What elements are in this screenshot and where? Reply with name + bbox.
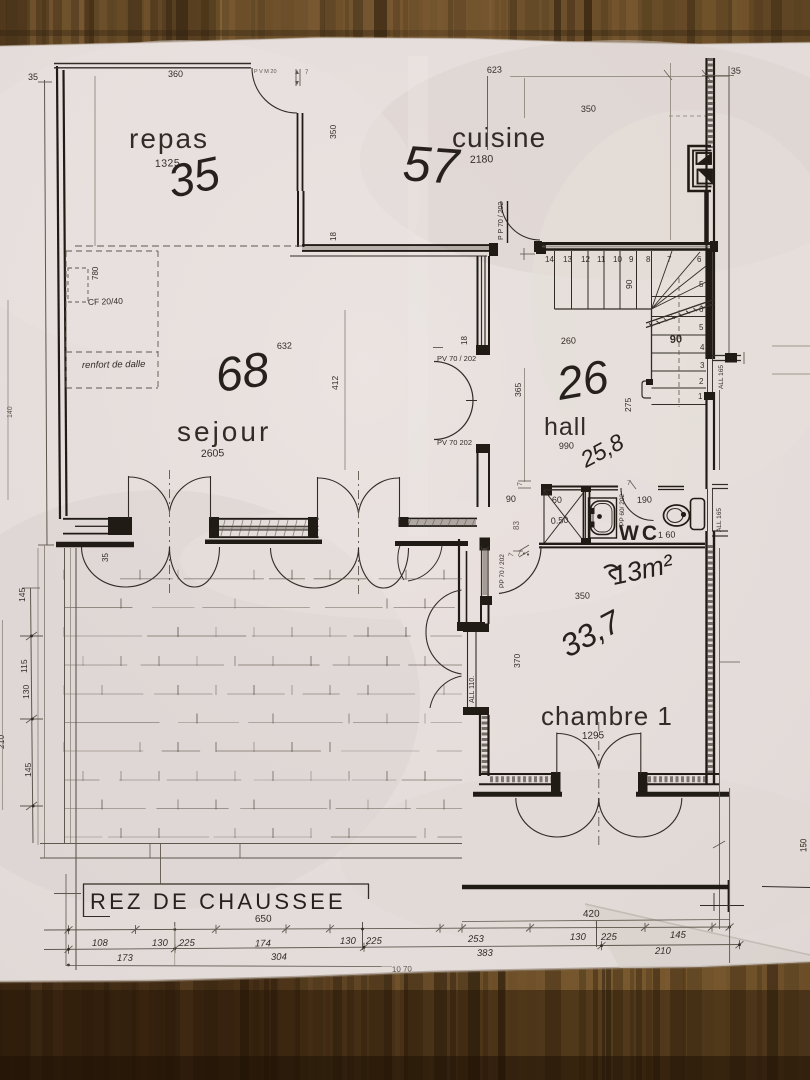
- svg-text:90: 90: [624, 279, 634, 289]
- svg-text:990: 990: [559, 440, 574, 451]
- svg-text:130: 130: [152, 938, 169, 949]
- svg-text:6: 6: [699, 305, 704, 314]
- svg-text:304: 304: [271, 952, 287, 963]
- svg-text:260: 260: [561, 335, 576, 346]
- svg-text:350: 350: [581, 103, 596, 114]
- svg-text:190: 190: [637, 494, 652, 505]
- svg-text:57: 57: [401, 135, 463, 195]
- svg-text:18: 18: [460, 336, 469, 345]
- svg-text:420: 420: [583, 909, 600, 920]
- svg-text:1295: 1295: [582, 730, 605, 742]
- svg-text:26: 26: [552, 350, 613, 410]
- svg-text:115: 115: [19, 659, 29, 673]
- svg-text:145: 145: [23, 763, 33, 777]
- svg-text:5: 5: [699, 323, 704, 332]
- svg-text:4: 4: [700, 343, 705, 352]
- svg-text:renfort de dalle: renfort de dalle: [82, 359, 146, 371]
- svg-text:360: 360: [168, 69, 183, 79]
- svg-text:130: 130: [340, 936, 357, 947]
- svg-text:ALL 110.: ALL 110.: [469, 676, 476, 703]
- svg-text:P V M 20: P V M 20: [254, 69, 277, 75]
- svg-text:2605: 2605: [201, 447, 225, 460]
- svg-text:PV 70 202: PV 70 202: [437, 438, 472, 447]
- svg-text:5: 5: [699, 280, 704, 289]
- svg-text:2180: 2180: [470, 153, 494, 166]
- svg-text:365: 365: [513, 383, 523, 397]
- svg-text:3: 3: [700, 361, 705, 370]
- svg-text:ALL 165: ALL 165: [716, 508, 723, 532]
- svg-text:cuisine: cuisine: [452, 122, 546, 153]
- svg-text:275: 275: [623, 398, 633, 412]
- svg-text:REZ DE CHAUSSEE: REZ DE CHAUSSEE: [90, 889, 346, 914]
- svg-text:68: 68: [212, 343, 273, 403]
- svg-text:12: 12: [581, 255, 590, 264]
- svg-text:145: 145: [17, 588, 27, 602]
- svg-text:PP 70 / 202: PP 70 / 202: [499, 554, 506, 588]
- svg-text:8: 8: [646, 255, 651, 264]
- svg-text:210: 210: [0, 735, 6, 749]
- svg-text:90: 90: [670, 333, 683, 346]
- svg-text:35: 35: [101, 553, 110, 562]
- svg-text:7: 7: [517, 482, 524, 486]
- svg-text:225: 225: [365, 936, 383, 947]
- svg-text:13: 13: [563, 255, 572, 264]
- svg-text:108: 108: [92, 938, 109, 949]
- svg-text:412: 412: [330, 376, 340, 390]
- svg-text:7: 7: [627, 480, 631, 487]
- svg-text:650: 650: [255, 914, 272, 925]
- svg-text:14: 14: [545, 255, 554, 264]
- svg-text:hall: hall: [544, 413, 587, 441]
- svg-text:383: 383: [477, 948, 494, 959]
- svg-text:35: 35: [28, 72, 38, 82]
- svg-text:35: 35: [731, 65, 742, 76]
- svg-text:210: 210: [654, 946, 672, 957]
- svg-text:ALL 165: ALL 165: [718, 365, 725, 389]
- svg-text:PV 70 / 202: PV 70 / 202: [437, 354, 476, 363]
- svg-text:18: 18: [329, 232, 338, 241]
- svg-text:11: 11: [597, 255, 606, 264]
- svg-text:60: 60: [552, 495, 562, 505]
- svg-text:10 70: 10 70: [392, 964, 413, 974]
- svg-text:632: 632: [277, 340, 292, 351]
- svg-text:623: 623: [487, 64, 502, 75]
- svg-text:253: 253: [467, 934, 485, 945]
- svg-text:WC: WC: [619, 522, 660, 545]
- svg-text:145: 145: [670, 930, 687, 941]
- svg-text:173: 173: [117, 953, 134, 964]
- svg-text:350: 350: [575, 590, 590, 601]
- svg-text:225: 225: [178, 938, 196, 949]
- svg-text:225: 225: [600, 932, 618, 943]
- svg-text:7: 7: [517, 551, 521, 558]
- svg-text:CF 20/40: CF 20/40: [88, 296, 124, 307]
- svg-text:150: 150: [800, 838, 809, 852]
- svg-text:780: 780: [91, 266, 100, 280]
- svg-text:1: 1: [698, 392, 703, 401]
- svg-text:0.50: 0.50: [550, 515, 568, 526]
- svg-text:6: 6: [697, 255, 702, 264]
- svg-text:2: 2: [699, 377, 704, 386]
- svg-text:1 60: 1 60: [658, 529, 676, 540]
- svg-text:90: 90: [506, 494, 516, 504]
- svg-text:350: 350: [328, 125, 338, 139]
- svg-text:9: 9: [629, 255, 634, 264]
- svg-text:83: 83: [512, 521, 521, 530]
- svg-text:130: 130: [570, 932, 587, 943]
- svg-text:chambre 1: chambre 1: [541, 701, 673, 731]
- svg-text:370: 370: [512, 654, 522, 668]
- svg-text:10: 10: [613, 255, 622, 264]
- svg-text:sejour: sejour: [177, 416, 271, 447]
- svg-text:130: 130: [21, 685, 31, 699]
